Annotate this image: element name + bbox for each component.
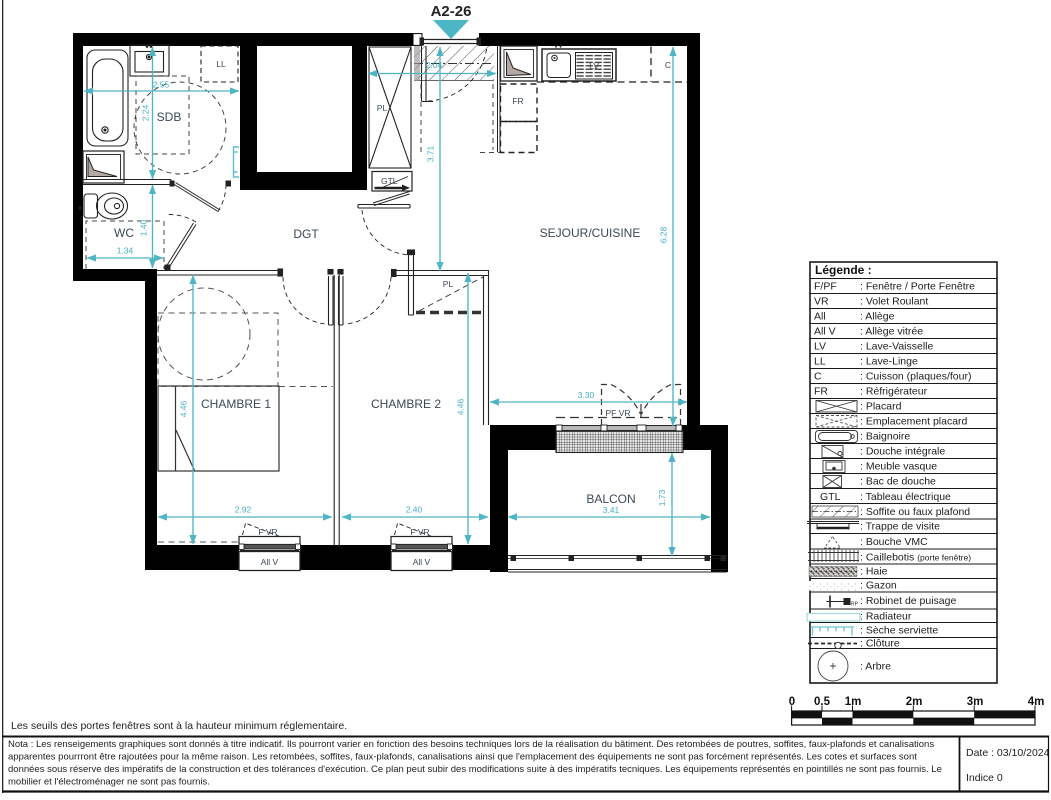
svg-text:All V: All V bbox=[814, 326, 836, 338]
svg-text:: Soffite ou faux plafond: : Soffite ou faux plafond bbox=[860, 506, 970, 518]
svg-text:: Allège vitrée: : Allège vitrée bbox=[860, 326, 923, 338]
svg-text:WC: WC bbox=[114, 226, 134, 240]
svg-text:3.41: 3.41 bbox=[603, 505, 620, 515]
svg-text:Date : 03/10/2024: Date : 03/10/2024 bbox=[966, 747, 1050, 759]
svg-text:FR: FR bbox=[814, 386, 828, 398]
svg-text:: Radiateur: : Radiateur bbox=[860, 611, 912, 623]
svg-text:4m: 4m bbox=[1028, 696, 1045, 708]
svg-text:2.92: 2.92 bbox=[235, 505, 252, 515]
svg-text:3m: 3m bbox=[967, 696, 984, 708]
svg-text:F VR: F VR bbox=[410, 527, 429, 537]
svg-text:1.73: 1.73 bbox=[657, 489, 667, 506]
svg-text:: Bouche VMC: : Bouche VMC bbox=[860, 536, 928, 548]
svg-text:2m: 2m bbox=[906, 696, 923, 708]
svg-text:All: All bbox=[814, 311, 826, 323]
svg-text:Indice 0: Indice 0 bbox=[966, 772, 1003, 784]
svg-text:: Trappe de visite: : Trappe de visite bbox=[860, 521, 940, 533]
svg-text:6.28: 6.28 bbox=[659, 226, 669, 243]
svg-text:: Haie: : Haie bbox=[860, 566, 888, 578]
svg-text:: Lave-Vaisselle: : Lave-Vaisselle bbox=[860, 341, 934, 353]
svg-text:: Baignoire: : Baignoire bbox=[860, 431, 910, 443]
svg-text:1.40: 1.40 bbox=[139, 219, 149, 236]
svg-text:4.46: 4.46 bbox=[179, 400, 189, 417]
svg-text:: Lave-Linge: : Lave-Linge bbox=[860, 356, 918, 368]
svg-text:: Réfrigérateur: : Réfrigérateur bbox=[860, 386, 928, 398]
svg-text:: Emplacement placard: : Emplacement placard bbox=[860, 416, 968, 428]
svg-text:: Meuble vasque: : Meuble vasque bbox=[860, 461, 937, 473]
svg-text:RP: RP bbox=[851, 602, 859, 608]
svg-text:: Allège: : Allège bbox=[860, 311, 895, 323]
svg-text:Les seuils des portes fenêtres: Les seuils des portes fenêtres sont à la… bbox=[11, 720, 347, 732]
svg-text:3.71: 3.71 bbox=[426, 145, 436, 162]
svg-text:LV: LV bbox=[814, 341, 826, 353]
svg-text:: Clôture: : Clôture bbox=[860, 638, 900, 650]
svg-text:GTL: GTL bbox=[820, 491, 841, 503]
svg-text:: Robinet de puisage: : Robinet de puisage bbox=[860, 595, 956, 607]
svg-text:: Arbre: : Arbre bbox=[860, 661, 891, 673]
svg-text:SEJOUR/CUISINE: SEJOUR/CUISINE bbox=[540, 226, 641, 240]
svg-text:CHAMBRE 1: CHAMBRE 1 bbox=[201, 397, 271, 411]
svg-text:: Caillebotis (porte fenêtre): : Caillebotis (porte fenêtre) bbox=[860, 552, 971, 564]
svg-text:PL: PL bbox=[443, 279, 454, 289]
svg-text:LL: LL bbox=[216, 59, 226, 69]
svg-text:: Gazon: : Gazon bbox=[860, 580, 897, 592]
svg-text:: Tableau électrique: : Tableau électrique bbox=[860, 491, 951, 503]
svg-text:: Volet Roulant: : Volet Roulant bbox=[860, 296, 928, 308]
svg-text:F/PF: F/PF bbox=[814, 281, 837, 293]
svg-text:BALCON: BALCON bbox=[586, 492, 635, 506]
svg-text:2.24: 2.24 bbox=[141, 104, 151, 121]
svg-text:PL: PL bbox=[377, 103, 388, 113]
svg-text:: Sèche serviette: : Sèche serviette bbox=[860, 625, 938, 637]
svg-text:3.30: 3.30 bbox=[578, 390, 595, 400]
svg-text:: Fenêtre / Porte Fenêtre: : Fenêtre / Porte Fenêtre bbox=[860, 281, 975, 293]
svg-text:All V: All V bbox=[261, 557, 279, 567]
svg-text:: Placard: : Placard bbox=[860, 401, 902, 413]
svg-text:F VR: F VR bbox=[258, 527, 277, 537]
svg-text:C: C bbox=[814, 371, 822, 383]
svg-text:: Cuisson (plaques/four): : Cuisson (plaques/four) bbox=[860, 371, 971, 383]
svg-text:LV: LV bbox=[589, 61, 599, 71]
svg-text:apparentes pourrront être rajo: apparentes pourrront être rajoutées pour… bbox=[8, 752, 917, 763]
svg-text:2.04: 2.04 bbox=[426, 60, 443, 70]
svg-text:C: C bbox=[665, 60, 671, 70]
svg-text:Nota : Les renseigements graph: Nota : Les renseigements graphiques sont… bbox=[8, 739, 934, 750]
svg-text:DGT: DGT bbox=[293, 227, 319, 241]
svg-text:PF VR: PF VR bbox=[605, 408, 630, 418]
svg-text:données sous réserve des impér: données sous réserve des impératifs de l… bbox=[8, 764, 942, 775]
svg-text:1.34: 1.34 bbox=[117, 246, 134, 256]
svg-text:mobilier et l'électroménager n: mobilier et l'électroménager ne sont pas… bbox=[8, 777, 210, 788]
svg-text:4.46: 4.46 bbox=[456, 398, 466, 415]
svg-text:Légende :: Légende : bbox=[815, 263, 872, 277]
svg-text:2.40: 2.40 bbox=[406, 505, 423, 515]
svg-text:LL: LL bbox=[814, 356, 826, 368]
svg-text:2.55: 2.55 bbox=[153, 80, 170, 90]
svg-text:SDB: SDB bbox=[157, 110, 182, 124]
svg-text:CHAMBRE 2: CHAMBRE 2 bbox=[371, 397, 441, 411]
svg-text:VR: VR bbox=[814, 296, 829, 308]
svg-text:: Douche intégrale: : Douche intégrale bbox=[860, 446, 945, 458]
svg-text:: Bac de douche: : Bac de douche bbox=[860, 476, 936, 488]
svg-text:All V: All V bbox=[413, 557, 431, 567]
svg-text:FR: FR bbox=[512, 96, 523, 106]
svg-text:A2-26: A2-26 bbox=[431, 3, 472, 20]
